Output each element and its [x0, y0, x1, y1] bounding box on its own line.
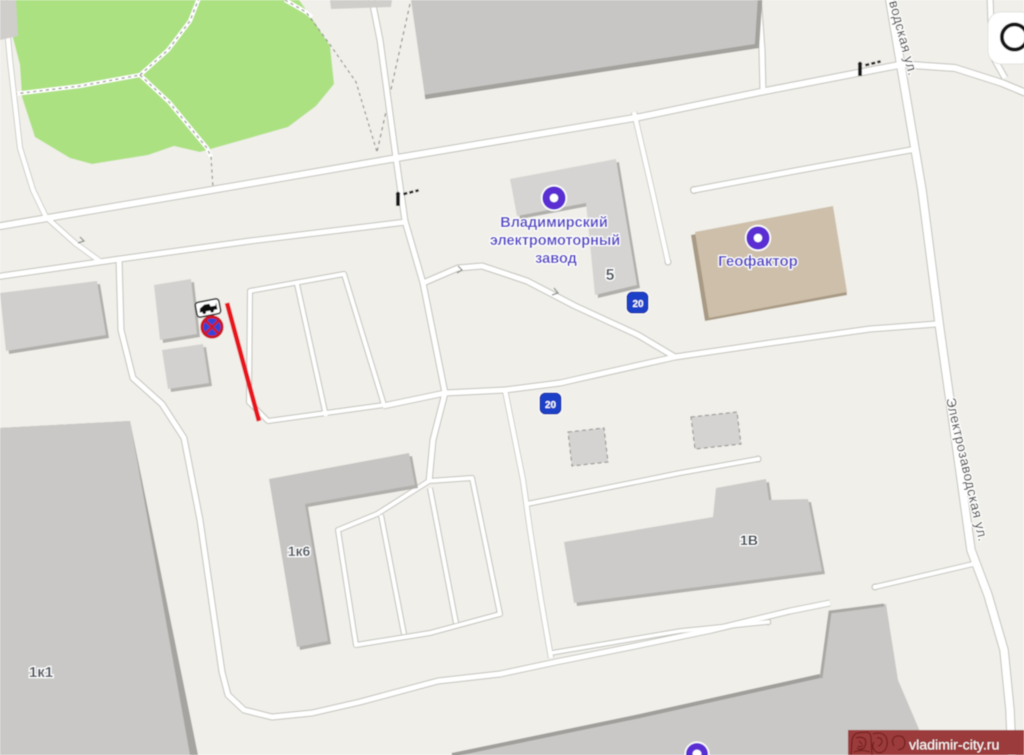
svg-text:vladimir-city.ru: vladimir-city.ru — [909, 738, 999, 754]
svg-text:электромоторный: электромоторный — [490, 233, 620, 249]
svg-text:Владимирский: Владимирский — [500, 215, 608, 231]
svg-text:завод: завод — [535, 251, 577, 267]
svg-text:Геофактор: Геофактор — [718, 253, 798, 270]
svg-text:1к6: 1к6 — [288, 543, 311, 559]
svg-text:1к1: 1к1 — [29, 664, 53, 681]
svg-text:20: 20 — [632, 299, 644, 310]
svg-text:1В: 1В — [740, 532, 758, 548]
svg-text:20: 20 — [545, 400, 557, 411]
svg-text:5: 5 — [606, 267, 615, 284]
